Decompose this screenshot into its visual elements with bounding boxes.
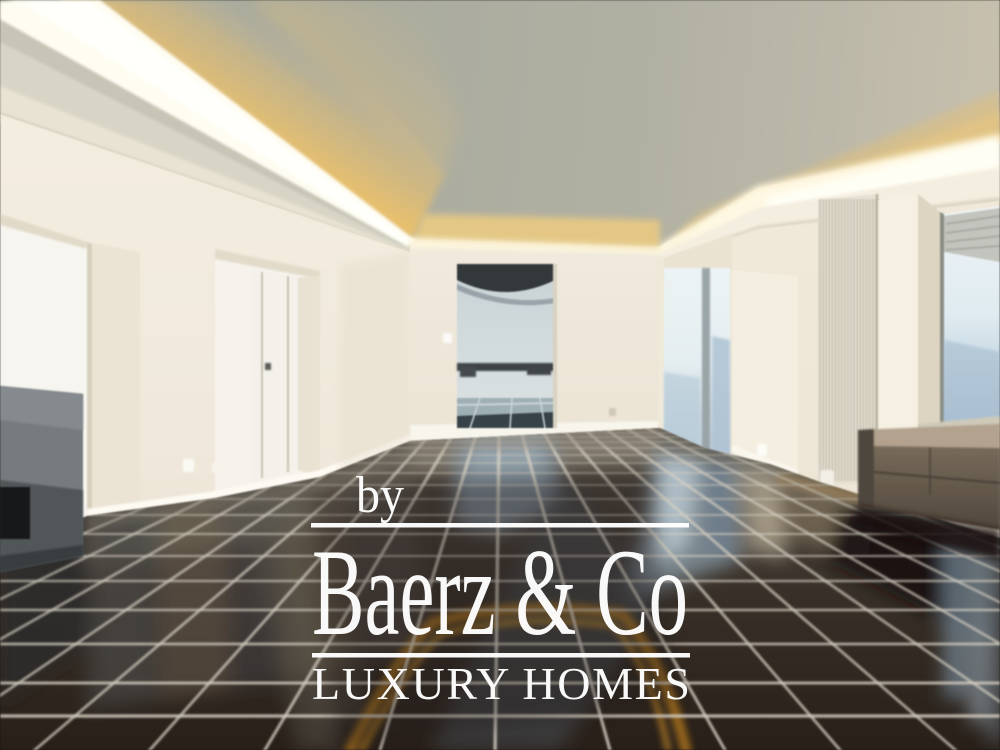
svg-text:by: by	[356, 467, 404, 524]
svg-text:Baerz & Co: Baerz & Co	[312, 524, 688, 661]
